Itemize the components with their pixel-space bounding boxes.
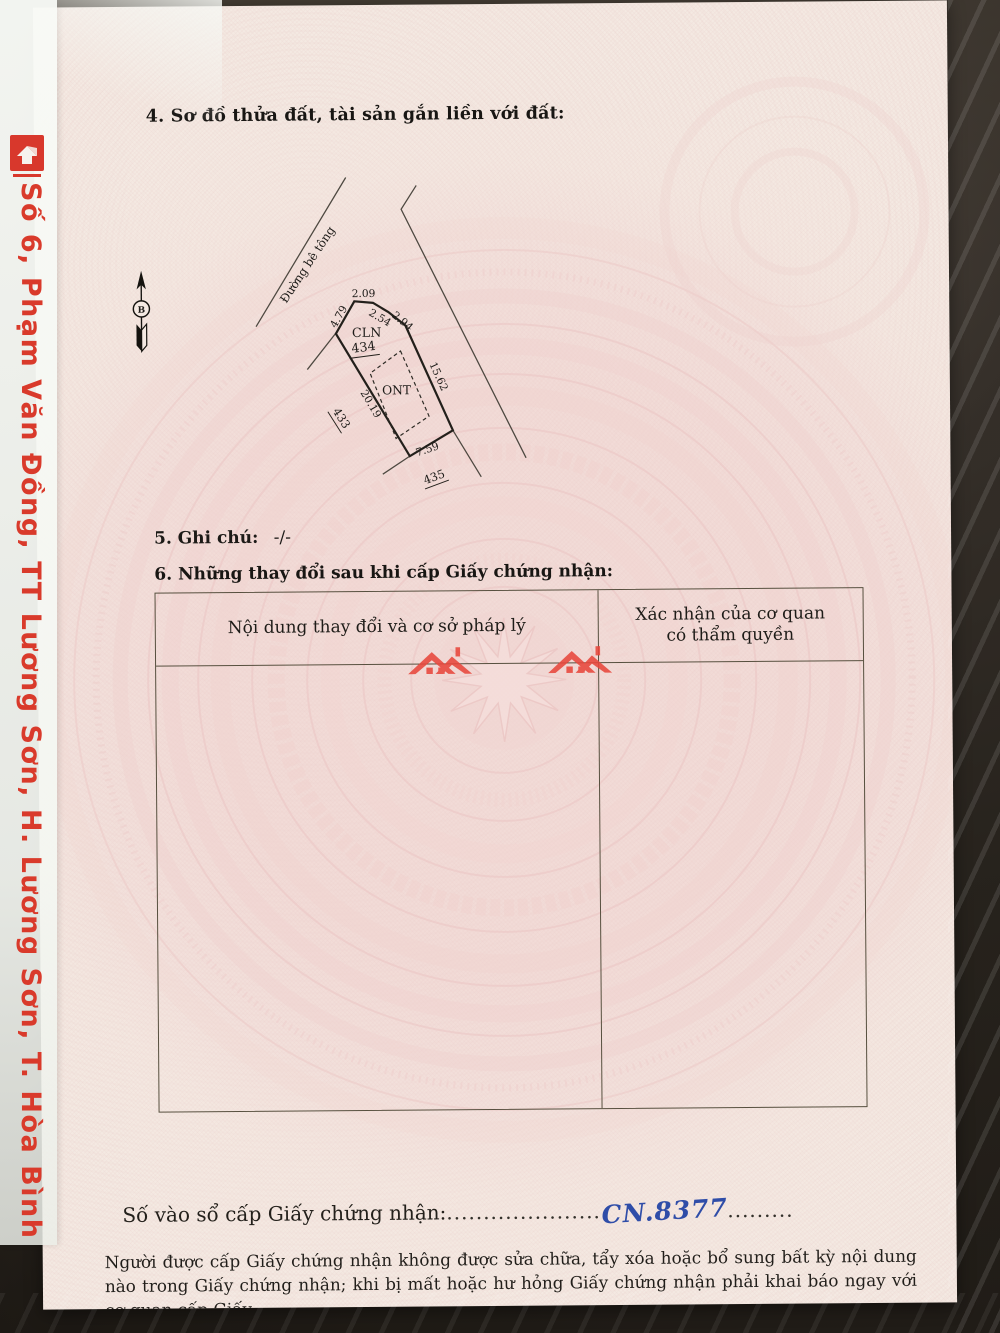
edge-right: 15.62 [427, 360, 450, 393]
section5-label: 5. Ghi chú: [154, 528, 258, 549]
parcel-number: 434 [347, 337, 380, 358]
registry-dots-after: ......... [727, 1198, 793, 1223]
svg-text:433: 433 [330, 405, 354, 431]
photo-scene: 4. Sơ đồ thửa đất, tài sản gắn liền với … [0, 0, 1000, 1333]
house-logo-icon [408, 642, 472, 685]
section5-note: 5. Ghi chú: -/- [154, 528, 291, 549]
north-label: B [138, 306, 146, 316]
plastic-sleeve-edge: Số 6, Phạm Văn Đồng, TT Lương Sơn, H. Lư… [0, 0, 57, 1245]
sleeve-address-watermark: Số 6, Phạm Văn Đồng, TT Lương Sơn, H. Lư… [15, 182, 46, 1239]
section5-value: -/- [274, 528, 291, 548]
registry-label: Số vào sổ cấp Giấy chứng nhận: [122, 1200, 446, 1227]
edge-bottom: 7.59 [414, 440, 440, 459]
land-use-ont: ONT [382, 383, 412, 397]
edge-top: 2.09 [352, 288, 376, 300]
adjacent-parcel-435: 435 [420, 466, 449, 489]
registry-number-handwritten: CN.8377 [600, 1193, 728, 1230]
edge-top-left: 4.79 [328, 303, 350, 330]
realtor-logo-icon [9, 134, 45, 180]
registry-line: Số vào sổ cấp Giấy chứng nhận:..........… [122, 1194, 793, 1228]
footer-note: Người được cấp Giấy chứng nhận không đượ… [105, 1245, 918, 1310]
parcel-diagram: B Đường bê tông 2.09 4.79 2.54 2.94 15.6… [96, 119, 659, 553]
edge-upper-right-2: 2.94 [389, 309, 415, 333]
section6-title: 6. Những thay đổi sau khi cấp Giấy chứng… [154, 561, 613, 585]
table-header-content: Nội dung thay đổi và cơ sở pháp lý [156, 590, 599, 665]
road-label: Đường bê tông [277, 223, 338, 305]
land-use-cln: CLN [352, 325, 381, 340]
svg-text:434: 434 [350, 338, 376, 356]
svg-text:435: 435 [421, 466, 446, 487]
house-logo-icon [548, 641, 612, 684]
table-header-confirmation: Xác nhận của cơ quan có thẩm quyền [597, 588, 863, 662]
road-lines [255, 176, 526, 478]
registry-dots-before: ..................... [446, 1199, 601, 1224]
changes-table: Nội dung thay đổi và cơ sở pháp lý Xác n… [154, 587, 867, 1113]
certificate-page: 4. Sơ đồ thửa đất, tài sản gắn liền với … [33, 0, 957, 1309]
adjacent-parcel-433: 433 [328, 404, 355, 434]
plastic-sheen [948, 0, 1000, 1333]
